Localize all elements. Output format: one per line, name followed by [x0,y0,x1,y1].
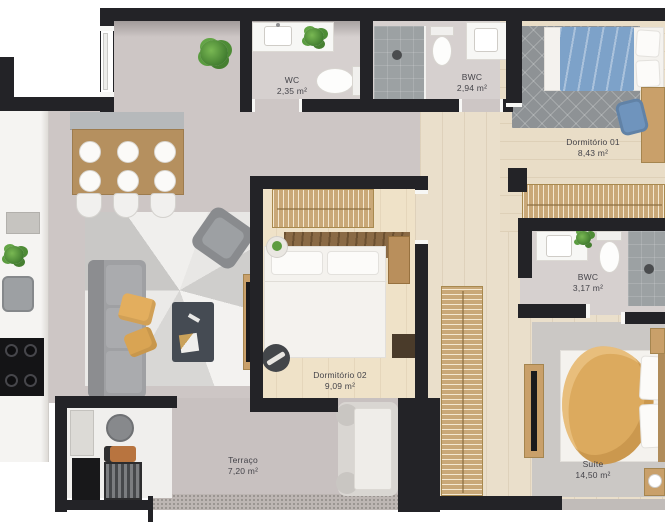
stool-stripe [266,351,286,366]
magazine [179,333,199,353]
sideboard [70,112,184,130]
sofa-back [88,260,104,398]
plate [117,141,139,163]
shower-head [644,264,654,274]
wall-stub-wardrobe01 [508,168,527,192]
bwc1-toilet-bowl [432,36,452,66]
nook-sink [106,414,134,442]
cutting-board [104,446,136,462]
room-label-bwc2: BWC 3,17 m² [543,272,633,293]
plate [79,141,101,163]
kitchen-tray [6,212,40,234]
coffee-station [70,410,94,456]
room-area: 7,20 m² [198,466,288,477]
plate [154,141,176,163]
wardrobe-rail [462,291,464,493]
dark-nightstand [392,334,416,358]
room-label-dormitorio-01: Dormitório 01 8,43 m² [548,137,638,158]
wc-plant [304,28,324,46]
room-area: 14,50 m² [548,470,638,481]
oven [72,458,100,502]
wall-topleft-block [0,57,14,97]
wall-nook-bottom [55,500,151,510]
nightstand-plant [272,241,282,251]
pillow [327,251,379,275]
door-jamb [459,99,462,112]
dining-chair [150,193,176,218]
room-area: 3,17 m² [543,283,633,294]
bench-cushion [354,408,392,490]
cooktop [0,338,44,396]
remote [188,313,200,322]
room-area: 9,09 m² [295,381,385,392]
armchair-cushion [200,215,246,261]
dining-chair [113,193,139,218]
tv-suite [531,371,537,451]
wardrobe-rail [527,204,662,206]
wall-suite-bottom-light [562,499,665,510]
vent-grill [104,462,142,500]
bwc2-toilet-tank [596,231,622,241]
wall-dorm02-left [250,176,263,412]
room-name: Suíte [548,459,638,470]
bwc1-shower [374,26,426,104]
plate [154,170,176,192]
room-label-terraco: Terraço 7,20 m² [198,455,288,476]
wc-door-opening [255,99,299,112]
bwc1-toilet-tank [430,26,454,36]
door-jamb [415,190,428,194]
bwc2-toilet-bowl [599,241,620,273]
living-plant [200,40,228,66]
suite-headboard [658,350,665,462]
suite-nightstand [650,328,665,354]
wall-bwc2-top [518,218,665,231]
dining-chair [76,193,102,218]
door-jamb [252,99,255,112]
wall-nook-left [55,396,67,512]
room-name: Terraço [198,455,288,466]
floor-plan: WC 2,35 m² BWC 2,94 m² Dormitório 01 8,4… [0,0,665,522]
wall-topleft-h [0,97,112,111]
room-name: Dormitório 02 [295,370,385,381]
wall-bwc2-bottom [518,304,590,318]
door-jamb [506,103,522,107]
wall-top [100,8,665,21]
door-jamb [415,240,428,244]
wall-dorm02-top [250,176,428,189]
terrace-edge-strip [148,494,420,510]
room-area: 2,35 m² [247,86,337,97]
plate [117,170,139,192]
lamp [648,474,662,488]
room-area: 8,43 m² [548,148,638,159]
room-label-bwc1: BWC 2,94 m² [427,72,517,93]
room-name: WC [247,75,337,86]
bwc1-shower-glass [424,26,426,104]
door-jamb [621,312,625,324]
pillow [635,59,660,87]
bwc2-sink [546,235,572,257]
wall-terrace-left-line [148,496,153,522]
plate [79,170,101,192]
wall-suite-bottom [440,496,562,510]
bwc1-sink [474,28,498,52]
shower-head [392,50,402,60]
entry-door-leaf [103,33,108,90]
wall-terrace-right [398,398,440,512]
sofa-cushion [106,351,142,393]
room-area: 2,94 m² [427,83,517,94]
room-name: BWC [543,272,633,283]
door-jamb [299,99,302,112]
wardrobe-rail [277,208,371,210]
room-label-wc: WC 2,35 m² [247,75,337,96]
dorm02-door-opening [415,194,428,240]
dormitorio-02-desk [388,236,410,284]
duvet-fold [265,281,387,282]
coffee-table [172,302,214,362]
wall-bwc2-left [518,218,532,278]
dormitorio-02-bed [264,246,386,358]
suite-wardrobe [441,286,483,496]
blue-blanket [560,27,634,91]
pillow [635,29,661,58]
kitchen-plant [4,246,24,264]
wc-faucet [276,23,280,27]
room-label-dormitorio-02: Dormitório 02 9,09 m² [295,370,385,391]
wall-suite-top-right [625,312,665,324]
bwc2-plant [576,231,591,245]
bwc-door-opening [462,99,500,112]
wall-nook-top [55,396,177,408]
room-name: BWC [427,72,517,83]
terrace-bench [338,402,398,496]
wall-dorm02-bottom [250,398,338,412]
door-jamb [500,99,503,112]
kitchen-sink [2,276,34,312]
stool [262,344,290,372]
room-name: Dormitório 01 [548,137,638,148]
door-jamb [586,304,590,318]
wc-sink [264,26,292,46]
room-label-suite: Suíte 14,50 m² [548,459,638,480]
dormitorio-02-wardrobe [272,189,374,228]
